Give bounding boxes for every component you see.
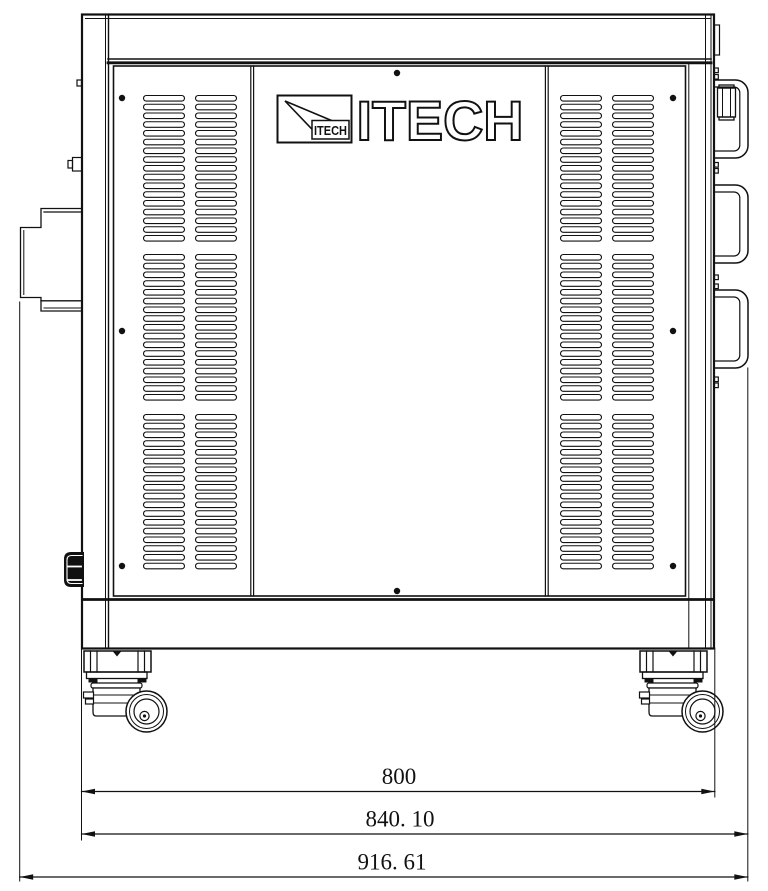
vent-slot — [144, 272, 185, 278]
vent-slot — [613, 423, 654, 429]
vent-slot — [561, 290, 602, 296]
screw-dot — [119, 328, 125, 334]
vent-slot — [196, 316, 237, 322]
vent-slot — [144, 423, 185, 429]
left-side-features — [21, 80, 85, 587]
vent-slot — [561, 131, 602, 137]
vent-slot — [196, 209, 237, 215]
edge-tick — [715, 383, 719, 388]
vent-slot — [561, 236, 602, 242]
vent-slot — [561, 351, 602, 357]
vent-slot — [144, 441, 185, 447]
screw-dot — [670, 95, 676, 101]
vent-slot — [613, 148, 654, 154]
rack-handle — [715, 185, 749, 263]
vent-slot — [196, 298, 237, 304]
vent-slot — [613, 157, 654, 163]
vent-slot — [196, 511, 237, 517]
dim-arrow — [734, 831, 748, 836]
vent-slot — [196, 485, 237, 491]
dimension-annotations: 800 840. 10 916. 61 — [20, 302, 748, 881]
vent-slot — [613, 458, 654, 464]
vent-slot — [561, 342, 602, 348]
vent-slot — [561, 395, 602, 401]
vent-slot — [144, 298, 185, 304]
vent-slot — [561, 546, 602, 552]
vent-slot — [613, 272, 654, 278]
edge-tick — [715, 68, 719, 73]
handle-socket — [718, 85, 736, 120]
vent-slot — [196, 386, 237, 392]
vent-slot — [561, 104, 602, 110]
vent-slot — [144, 555, 185, 561]
dim-arrow — [82, 831, 96, 836]
vent-slot — [144, 511, 185, 517]
edge-tick — [715, 284, 719, 289]
vent-slot — [561, 432, 602, 438]
vent-slot — [561, 555, 602, 561]
logo-box-text: ITECH — [314, 123, 347, 138]
vent-slot — [144, 432, 185, 438]
vent-slot — [613, 96, 654, 102]
vent-slot — [144, 290, 185, 296]
vent-slot — [144, 528, 185, 534]
left-side-knob — [64, 552, 84, 587]
edge-tick — [715, 169, 719, 174]
vent-slot — [144, 236, 185, 242]
vent-slot — [144, 166, 185, 172]
vent-slot — [561, 316, 602, 322]
vent-slot — [196, 281, 237, 287]
vent-slot — [561, 511, 602, 517]
screw-dot — [670, 563, 676, 569]
dimension-label-800: 800 — [382, 764, 417, 789]
vent-slot — [561, 209, 602, 215]
dimension-line-916: 916. 61 — [20, 850, 748, 880]
vent-slot — [196, 227, 237, 233]
screw-dot — [394, 588, 400, 594]
vent-slot — [561, 281, 602, 287]
vent-slot — [561, 113, 602, 119]
dim-arrow — [82, 789, 96, 794]
vent-slot — [196, 290, 237, 296]
vent-slot — [144, 192, 185, 198]
vent-slot — [561, 272, 602, 278]
vent-slot — [196, 493, 237, 499]
screw-dot — [670, 328, 676, 334]
vent-slot — [144, 360, 185, 366]
vent-slot — [196, 104, 237, 110]
vent-slot — [613, 218, 654, 224]
vent-slot — [613, 502, 654, 508]
vent-slot — [144, 122, 185, 128]
vent-slot — [144, 485, 185, 491]
right-side-features — [715, 25, 749, 388]
vent-slot — [144, 377, 185, 383]
vent-slot — [561, 386, 602, 392]
vent-slot — [196, 450, 237, 456]
vent-slot — [196, 342, 237, 348]
vent-slot — [613, 227, 654, 233]
vent-slot — [561, 263, 602, 269]
vent-slot — [196, 377, 237, 383]
vent-slot — [613, 377, 654, 383]
vent-slot — [144, 546, 185, 552]
vent-slot — [196, 255, 237, 261]
vent-slot — [144, 316, 185, 322]
bracket-notch — [113, 651, 122, 657]
vent-slot — [196, 415, 237, 421]
vent-slot — [144, 450, 185, 456]
left-side-bracket — [21, 209, 83, 312]
vent-slot — [613, 476, 654, 482]
vent-slot — [144, 395, 185, 401]
vent-slot — [144, 104, 185, 110]
vent-slot — [613, 441, 654, 447]
vent-slot — [613, 263, 654, 269]
vent-slot — [613, 563, 654, 569]
vent-slot — [144, 227, 185, 233]
screw-dot — [394, 70, 400, 76]
vent-slot — [144, 333, 185, 339]
vent-slot — [613, 139, 654, 145]
vent-slot — [144, 263, 185, 269]
vent-slot — [613, 368, 654, 374]
top-panel — [108, 59, 711, 63]
vent-slot — [561, 255, 602, 261]
vent-slot — [144, 520, 185, 526]
vent-slot — [561, 467, 602, 473]
vent-slot — [561, 563, 602, 569]
vent-slot — [144, 325, 185, 331]
vent-slot — [196, 423, 237, 429]
vent-slot — [613, 493, 654, 499]
vent-slot — [613, 298, 654, 304]
vent-slot — [144, 368, 185, 374]
vent-slot — [561, 227, 602, 233]
edge-tick — [715, 377, 719, 382]
vent-slot — [561, 201, 602, 207]
vent-slot — [196, 368, 237, 374]
vent-slot — [144, 467, 185, 473]
vent-slots — [144, 96, 654, 569]
vent-slot — [613, 467, 654, 473]
rack-handle — [715, 290, 749, 368]
rack-handles — [715, 80, 749, 368]
dim-arrow — [701, 789, 715, 794]
vent-slot — [196, 183, 237, 189]
vent-slot — [613, 485, 654, 491]
vent-slot — [613, 236, 654, 242]
vent-slot — [561, 139, 602, 145]
vent-slot — [196, 546, 237, 552]
technical-drawing-canvas: ITECH ITECH — [0, 0, 768, 891]
vent-slot — [613, 333, 654, 339]
vent-slot — [196, 502, 237, 508]
vent-slot — [196, 157, 237, 163]
dimension-line-840: 840. 10 — [82, 807, 748, 837]
vent-slot — [613, 395, 654, 401]
vent-slot — [196, 555, 237, 561]
edge-tick — [715, 75, 719, 80]
vent-slot — [144, 183, 185, 189]
brake-tab — [84, 692, 94, 698]
vent-slot — [613, 281, 654, 287]
dim-arrow — [20, 874, 34, 879]
vent-slot — [561, 493, 602, 499]
vent-slot — [613, 166, 654, 172]
vent-slot — [613, 174, 654, 180]
vent-slot — [144, 157, 185, 163]
vent-slot — [561, 307, 602, 313]
vent-slot — [144, 174, 185, 180]
vent-slot — [561, 423, 602, 429]
vent-slot — [144, 476, 185, 482]
vent-slot — [613, 546, 654, 552]
vent-slot — [144, 342, 185, 348]
edge-tick — [715, 163, 719, 168]
vent-slot — [613, 511, 654, 517]
vent-slot — [613, 360, 654, 366]
vent-slot — [196, 360, 237, 366]
vent-slot — [144, 281, 185, 287]
vent-slot — [561, 485, 602, 491]
logo-wordmark: ITECH — [357, 89, 524, 152]
vent-slot — [613, 192, 654, 198]
vent-slot — [196, 201, 237, 207]
vent-slot — [196, 139, 237, 145]
vent-slot — [144, 563, 185, 569]
vent-slot — [561, 157, 602, 163]
vent-slot — [561, 368, 602, 374]
vent-slot — [561, 192, 602, 198]
edge-tick — [715, 275, 719, 280]
vent-slot — [613, 415, 654, 421]
vent-slot — [613, 290, 654, 296]
vent-slot — [561, 174, 602, 180]
vent-slot — [144, 386, 185, 392]
vent-slot — [144, 458, 185, 464]
vent-slot — [613, 555, 654, 561]
left-edge-tick — [77, 80, 82, 86]
vent-slot — [561, 441, 602, 447]
vent-slot — [613, 528, 654, 534]
vent-slot — [196, 263, 237, 269]
vent-slot — [196, 441, 237, 447]
vent-slot — [144, 415, 185, 421]
vent-slot — [613, 255, 654, 261]
vent-slot — [196, 537, 237, 543]
technical-drawing-page: ITECH ITECH — [0, 0, 768, 891]
vent-slot — [196, 528, 237, 534]
vent-slot — [144, 131, 185, 137]
dimension-label-916: 916. 61 — [358, 850, 427, 875]
vent-slot — [613, 307, 654, 313]
vent-slot — [144, 209, 185, 215]
vent-slot — [196, 236, 237, 242]
vent-slot — [613, 183, 654, 189]
vent-slot — [613, 113, 654, 119]
vent-slot — [561, 122, 602, 128]
vent-slot — [561, 537, 602, 543]
vent-slot — [196, 166, 237, 172]
vent-slot — [144, 96, 185, 102]
caster-right — [640, 651, 724, 732]
vent-slot — [613, 520, 654, 526]
vent-slot — [196, 432, 237, 438]
vent-slot — [613, 537, 654, 543]
dimension-line-800: 800 — [82, 764, 715, 794]
vent-slot — [144, 113, 185, 119]
itech-logo: ITECH ITECH — [278, 89, 524, 152]
screw-dot — [119, 563, 125, 569]
vent-slot — [196, 467, 237, 473]
vent-slot — [613, 386, 654, 392]
vent-slot — [196, 148, 237, 154]
vent-slot — [144, 139, 185, 145]
dimension-label-840: 840. 10 — [366, 807, 435, 832]
vent-slot — [196, 563, 237, 569]
vent-slot — [196, 174, 237, 180]
vent-slot — [561, 325, 602, 331]
vent-slot — [196, 351, 237, 357]
vent-slot — [561, 298, 602, 304]
vent-slot — [561, 183, 602, 189]
left-side-tab — [68, 158, 82, 172]
vent-slot — [613, 209, 654, 215]
vent-slot — [144, 218, 185, 224]
panel-divider-right — [545, 66, 548, 596]
vent-slot — [561, 520, 602, 526]
vent-slot — [196, 122, 237, 128]
vent-slot — [196, 333, 237, 339]
vent-slot — [196, 395, 237, 401]
vent-slot — [196, 307, 237, 313]
vent-slot — [196, 192, 237, 198]
dim-arrow — [734, 874, 748, 879]
vent-slot — [613, 122, 654, 128]
vent-slot — [144, 502, 185, 508]
screw-dot — [119, 95, 125, 101]
vent-slot — [561, 218, 602, 224]
vent-slot — [561, 458, 602, 464]
vent-slot — [196, 476, 237, 482]
vent-slot — [561, 450, 602, 456]
vent-slot — [144, 351, 185, 357]
vent-slot — [613, 201, 654, 207]
vent-slot — [196, 272, 237, 278]
vent-slot — [144, 255, 185, 261]
caster-left — [84, 651, 168, 732]
vent-slot — [613, 450, 654, 456]
vent-slot — [613, 131, 654, 137]
vent-slot — [561, 476, 602, 482]
vent-slot — [561, 166, 602, 172]
vent-slot — [196, 131, 237, 137]
vent-slot — [196, 325, 237, 331]
vent-slot — [561, 415, 602, 421]
vent-slot — [196, 113, 237, 119]
vent-slot — [144, 201, 185, 207]
vent-slot — [561, 148, 602, 154]
vent-slot — [196, 458, 237, 464]
vent-slot — [196, 520, 237, 526]
vent-slot — [196, 218, 237, 224]
vent-slot — [561, 360, 602, 366]
vent-slot — [613, 342, 654, 348]
vent-slot — [561, 528, 602, 534]
vent-slot — [561, 502, 602, 508]
drawing-root: ITECH ITECH — [20, 15, 748, 882]
vent-slot — [613, 432, 654, 438]
vent-slot — [144, 493, 185, 499]
right-top-tab — [715, 25, 720, 55]
vent-slot — [144, 307, 185, 313]
vent-slot — [144, 148, 185, 154]
vent-slot — [144, 537, 185, 543]
vent-slot — [561, 96, 602, 102]
panel-divider-left — [251, 66, 254, 596]
vent-slot — [613, 316, 654, 322]
vent-slot — [613, 325, 654, 331]
vent-slot — [561, 333, 602, 339]
vent-slot — [196, 96, 237, 102]
vent-slot — [613, 351, 654, 357]
vent-slot — [561, 377, 602, 383]
vent-slot — [613, 104, 654, 110]
